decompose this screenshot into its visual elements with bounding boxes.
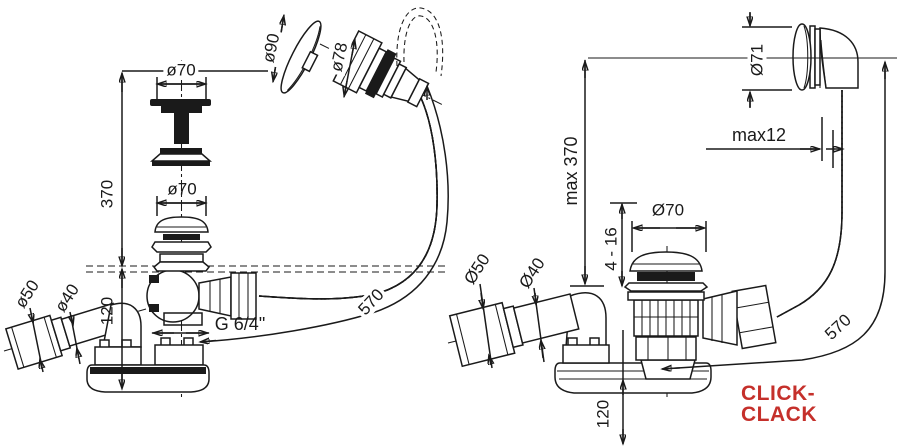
dim-label-dia70-mid: ø70 bbox=[167, 181, 196, 198]
right-overflow-hose bbox=[777, 90, 842, 317]
dim-label-max12: max12 bbox=[732, 126, 786, 144]
dim-label-370: 370 bbox=[99, 180, 116, 208]
dim-label-max370: max 370 bbox=[562, 136, 580, 205]
dim-label-4-16: 4 - 16 bbox=[603, 227, 620, 270]
dim-label-dia70-top: ø70 bbox=[163, 61, 198, 80]
dim-label-120-left: 120 bbox=[99, 297, 116, 325]
right-drawing bbox=[448, 12, 897, 444]
left-drawing bbox=[4, 8, 448, 400]
dim-label-dia71: Ø71 bbox=[748, 41, 767, 79]
left-overflow-hose bbox=[259, 98, 437, 299]
left-overflow-cap bbox=[275, 17, 332, 99]
right-drain-body bbox=[450, 252, 711, 393]
right-overflow-cap bbox=[793, 24, 858, 90]
right-plug-cap bbox=[630, 252, 702, 271]
left-overflow-head bbox=[275, 8, 443, 120]
dim-label-thread: G 6/4" bbox=[215, 315, 265, 333]
dim-label-120-right: 120 bbox=[595, 400, 612, 428]
dim-label-dia70-right: Ø70 bbox=[652, 202, 684, 219]
right-hose-connector bbox=[703, 285, 776, 348]
left-plug-top bbox=[150, 99, 211, 166]
technical-drawing: ø70 ø90 ø78 370 ø70 120 ø50 ø40 G 6/4" 5… bbox=[0, 0, 900, 446]
left-plug-mid bbox=[152, 217, 211, 271]
click-clack-label: CLICK-CLACK bbox=[741, 383, 847, 425]
right-inlet-pipe bbox=[450, 286, 581, 366]
